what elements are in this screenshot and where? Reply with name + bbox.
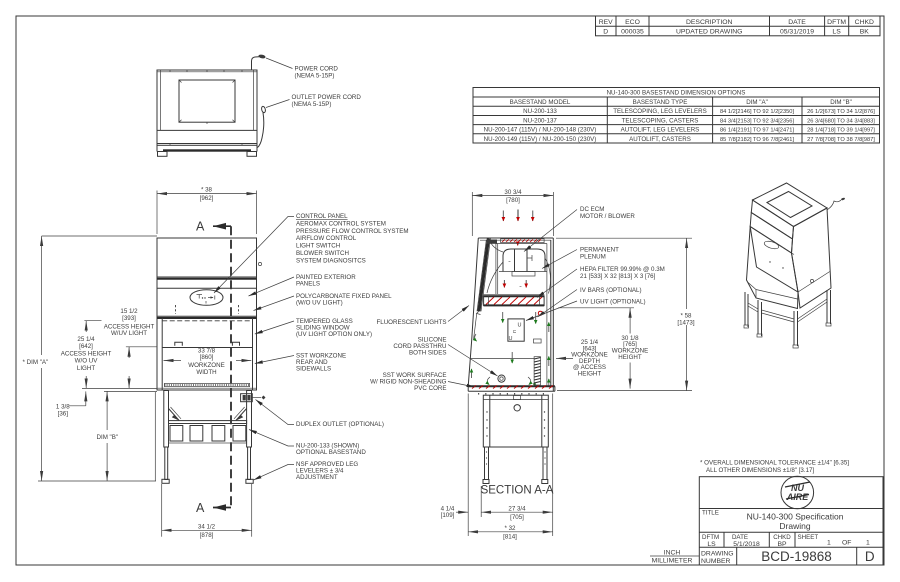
svg-text:W/UV LIGHT: W/UV LIGHT — [111, 330, 147, 337]
svg-text:WIDTH: WIDTH — [196, 369, 216, 376]
svg-text:28 1/4[718] TO 39 1/4[997]: 28 1/4[718] TO 39 1/4[997] — [807, 128, 875, 134]
svg-text:PRESSURE FLOW CONTROL SYSTEM: PRESSURE FLOW CONTROL SYSTEM — [296, 228, 409, 235]
svg-text:TELESCOPING, LEG LEVELERS: TELESCOPING, LEG LEVELERS — [613, 108, 707, 115]
svg-text:* 32: * 32 — [504, 525, 516, 532]
svg-text:PLENUM: PLENUM — [580, 254, 606, 261]
svg-text:NU-140-300 Specification: NU-140-300 Specification — [747, 512, 844, 522]
svg-text:AUTOLIFT, LEG LEVELERS: AUTOLIFT, LEG LEVELERS — [621, 127, 700, 134]
svg-text:BP: BP — [777, 541, 787, 548]
svg-text:21 [533] X 32 [813] X 3 [76]: 21 [533] X 32 [813] X 3 [76] — [580, 273, 656, 280]
svg-text:INCH: INCH — [664, 550, 681, 557]
svg-text:ALL OTHER DIMENSIONS ±1/8" [3.: ALL OTHER DIMENSIONS ±1/8" [3.17] — [706, 467, 814, 474]
svg-text:[780]: [780] — [506, 197, 520, 204]
svg-text:REV: REV — [599, 19, 613, 26]
svg-text:A: A — [196, 501, 205, 515]
svg-text:MILLIMETER: MILLIMETER — [652, 558, 693, 565]
svg-text:DC ECM: DC ECM — [580, 206, 604, 213]
svg-text:LS: LS — [707, 541, 716, 548]
svg-text:34 1/2: 34 1/2 — [198, 524, 216, 531]
svg-text:FLUORESCENT LIGHTS: FLUORESCENT LIGHTS — [376, 319, 446, 326]
svg-text:LS: LS — [832, 28, 841, 35]
svg-text:BASESTAND TYPE: BASESTAND TYPE — [633, 99, 688, 106]
svg-text:30 3/4: 30 3/4 — [504, 189, 522, 196]
svg-text:A: A — [196, 220, 205, 234]
svg-text:NUMBER: NUMBER — [701, 558, 731, 565]
svg-text:CONTROL PANEL: CONTROL PANEL — [296, 213, 348, 220]
svg-text:HEIGHT: HEIGHT — [578, 371, 602, 378]
svg-text:[962]: [962] — [200, 195, 214, 202]
svg-text:* OVERALL DIMENSIONAL TOLERANC: * OVERALL DIMENSIONAL TOLERANCE ±1/4" [6… — [700, 460, 849, 467]
svg-text:BCD-19868: BCD-19868 — [761, 549, 832, 564]
svg-text:TELESCOPING, CASTERS: TELESCOPING, CASTERS — [622, 117, 699, 124]
svg-text:84 1/2[2146] TO 92 1/2[2350]: 84 1/2[2146] TO 92 1/2[2350] — [720, 109, 795, 115]
svg-text:SYSTEM DIAGNOSITCS: SYSTEM DIAGNOSITCS — [296, 257, 366, 264]
svg-text:27 3/4: 27 3/4 — [508, 506, 526, 513]
svg-text:[109]: [109] — [441, 512, 455, 519]
svg-text:86 1/4[2191] TO 97 1/4[2471]: 86 1/4[2191] TO 97 1/4[2471] — [720, 128, 795, 134]
svg-text:[705]: [705] — [510, 514, 524, 521]
svg-text:DATE: DATE — [732, 534, 748, 541]
svg-text:1: 1 — [827, 540, 831, 547]
svg-text:BASESTAND MODEL: BASESTAND MODEL — [510, 99, 571, 106]
svg-text:[1473]: [1473] — [677, 320, 694, 327]
svg-text:SIDEWALLS: SIDEWALLS — [296, 366, 331, 373]
svg-text:DFTM: DFTM — [702, 534, 719, 541]
svg-text:* 38: * 38 — [201, 187, 213, 194]
svg-text:NU-200-149 (115V) / NU-200-150: NU-200-149 (115V) / NU-200-150 (230V) — [484, 136, 597, 143]
svg-text:PANELS: PANELS — [296, 281, 320, 288]
svg-text:NU-200-147 (115V) / NU-200-148: NU-200-147 (115V) / NU-200-148 (230V) — [484, 127, 597, 134]
svg-text:[393]: [393] — [122, 315, 136, 322]
svg-text:[814]: [814] — [503, 534, 517, 541]
svg-text:U: U — [518, 323, 522, 329]
svg-text:NU-140-300 BASESTAND DIMENSION: NU-140-300 BASESTAND DIMENSION OPTIONS — [607, 90, 746, 97]
svg-text:[878]: [878] — [200, 532, 214, 539]
svg-text:* 58: * 58 — [680, 313, 692, 320]
svg-text:BK: BK — [860, 28, 870, 35]
svg-text:ECO: ECO — [625, 19, 640, 26]
svg-text:u: u — [511, 330, 517, 333]
svg-text:(NEMA 5-15P): (NEMA 5-15P) — [295, 72, 335, 79]
svg-text:27 7/8[708] TO 38 7/8[987]: 27 7/8[708] TO 38 7/8[987] — [807, 137, 875, 143]
svg-text:1: 1 — [866, 540, 870, 547]
svg-text:* DIM "A": * DIM "A" — [23, 359, 49, 366]
svg-text:CHKD: CHKD — [855, 19, 874, 26]
svg-text:DIM "B": DIM "B" — [97, 434, 119, 441]
svg-text:84 3/4[2153] TO 92 3/4[2356]: 84 3/4[2153] TO 92 3/4[2356] — [720, 118, 795, 124]
svg-text:HEPA FILTER 99.99% @ 0.3M: HEPA FILTER 99.99% @ 0.3M — [580, 266, 665, 273]
svg-text:U: U — [509, 336, 513, 342]
svg-text:[36]: [36] — [58, 410, 69, 417]
svg-text:Drawing: Drawing — [779, 521, 810, 531]
svg-text:NU-200-133: NU-200-133 — [523, 108, 557, 115]
svg-text:26 1/2[673] TO 34 1/2[876]: 26 1/2[673] TO 34 1/2[876] — [807, 109, 875, 115]
svg-text:OPTIONAL BASESTAND: OPTIONAL BASESTAND — [296, 449, 366, 456]
svg-text:LIGHT: LIGHT — [77, 365, 95, 372]
svg-text:UV LIGHT (OPTIONAL): UV LIGHT (OPTIONAL) — [580, 299, 646, 306]
svg-text:ACCESS HEIGHT: ACCESS HEIGHT — [61, 350, 112, 357]
svg-text:000035: 000035 — [621, 28, 644, 35]
svg-text:AIRFLOW CONTROL: AIRFLOW CONTROL — [296, 235, 357, 242]
svg-text:UPDATED DRAWING: UPDATED DRAWING — [676, 28, 742, 35]
svg-text:BOTH SIDES: BOTH SIDES — [409, 350, 446, 357]
svg-text:LIGHT SWITCH: LIGHT SWITCH — [296, 243, 340, 250]
svg-text:[860]: [860] — [200, 354, 214, 361]
svg-text:D: D — [865, 549, 875, 564]
svg-text:(NEMA 5-15P): (NEMA 5-15P) — [292, 101, 332, 108]
svg-text:05/31/2019: 05/31/2019 — [780, 28, 814, 35]
svg-text:PERMANENT: PERMANENT — [580, 247, 619, 254]
svg-text:15 1/2: 15 1/2 — [120, 308, 138, 315]
svg-text:25 1/4: 25 1/4 — [77, 336, 95, 343]
svg-text:~: ~ — [508, 259, 511, 264]
svg-text:5/1/2018: 5/1/2018 — [733, 541, 760, 548]
svg-text:NU-200-137: NU-200-137 — [523, 117, 557, 124]
svg-text:IV BARS (OPTIONAL): IV BARS (OPTIONAL) — [580, 287, 642, 294]
svg-text:DIM "A": DIM "A" — [746, 99, 768, 106]
svg-text:26 3/4[680] TO 34 3/4[883]: 26 3/4[680] TO 34 3/4[883] — [807, 118, 875, 124]
svg-text:BLOWER SWITCH: BLOWER SWITCH — [296, 250, 349, 257]
svg-text:(UV LIGHT OPTION ONLY): (UV LIGHT OPTION ONLY) — [296, 331, 372, 338]
svg-text:ADJUSTMENT: ADJUSTMENT — [296, 474, 338, 481]
svg-text:SHEET: SHEET — [798, 534, 819, 541]
svg-text:POWER CORD: POWER CORD — [295, 65, 339, 72]
svg-text:AUTOLIFT, CASTERS: AUTOLIFT, CASTERS — [629, 136, 691, 143]
svg-text:AEROMAX CONTROL SYSTEM: AEROMAX CONTROL SYSTEM — [296, 220, 386, 227]
svg-text:PVC CORE: PVC CORE — [414, 385, 446, 392]
svg-text:W/O UV: W/O UV — [75, 358, 99, 365]
svg-text:CHKD: CHKD — [773, 534, 791, 541]
svg-text:HEIGHT: HEIGHT — [618, 354, 642, 361]
svg-text:TITLE: TITLE — [702, 510, 719, 517]
svg-text:DIM "B": DIM "B" — [830, 99, 852, 106]
svg-text:OF: OF — [842, 540, 851, 547]
svg-text:SECTION A-A: SECTION A-A — [481, 485, 554, 497]
svg-text:[642]: [642] — [79, 343, 93, 350]
svg-text:DUPLEX OUTLET (OPTIONAL): DUPLEX OUTLET (OPTIONAL) — [296, 421, 384, 428]
svg-text:85 7/8[2182] TO 96 7/8[2461]: 85 7/8[2182] TO 96 7/8[2461] — [720, 137, 795, 143]
svg-text:MOTOR / BLOWER: MOTOR / BLOWER — [580, 213, 635, 220]
svg-text:OUTLET POWER CORD: OUTLET POWER CORD — [292, 94, 362, 101]
svg-text:DRAWING: DRAWING — [701, 551, 734, 558]
svg-text:~: ~ — [519, 284, 522, 289]
svg-text:DFTM: DFTM — [827, 19, 846, 26]
svg-text:(W/O UV LIGHT): (W/O UV LIGHT) — [296, 300, 343, 307]
svg-text:D: D — [603, 28, 608, 35]
svg-text:DESCRIPTION: DESCRIPTION — [686, 19, 733, 26]
svg-text:DATE: DATE — [788, 19, 806, 26]
